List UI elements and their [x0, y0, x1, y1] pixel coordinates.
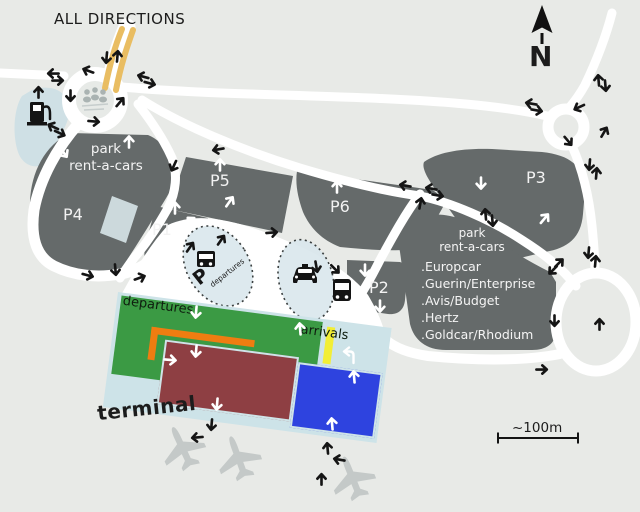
- direction-arrow: [79, 266, 97, 284]
- direction-arrow: [141, 74, 159, 92]
- bus-stop-icon: [333, 279, 351, 301]
- direction-arrow: [291, 319, 308, 336]
- direction-arrow: [162, 351, 179, 368]
- direction-arrow: [535, 362, 550, 377]
- direction-arrow: [187, 304, 204, 321]
- rental-company: .Guerin/Enterprise: [421, 275, 535, 292]
- north-label: N: [529, 40, 552, 73]
- direction-arrow: [597, 78, 613, 94]
- direction-arrow: [411, 193, 428, 210]
- rental-company: .Europcar: [421, 258, 535, 275]
- airport-map: departures arrivals ALL DIRECTIONS N ~10…: [0, 0, 640, 512]
- direction-arrow: [473, 176, 489, 192]
- turn-left-arrow: [338, 346, 358, 366]
- direction-arrow: [345, 367, 362, 384]
- plane-icon: [210, 429, 266, 486]
- direction-arrow: [86, 113, 102, 129]
- parking-lot-p3-label: P3: [526, 168, 546, 187]
- direction-arrow: [187, 343, 204, 360]
- direction-arrow: [588, 164, 604, 180]
- parking-lot-p6-label: P6: [330, 197, 350, 216]
- direction-arrow: [51, 73, 66, 88]
- direction-arrow: [63, 89, 78, 104]
- direction-arrow: [203, 417, 219, 433]
- direction-arrow: [323, 414, 340, 431]
- direction-arrow: [212, 156, 228, 172]
- road: [122, 87, 547, 116]
- scale-label: ~100m: [512, 420, 562, 436]
- direction-arrow: [329, 178, 345, 194]
- parking-lot-p1-label: P1: [152, 220, 172, 239]
- direction-arrow: [167, 199, 183, 215]
- direction-arrow: [121, 133, 137, 149]
- direction-arrow: [429, 186, 446, 203]
- direction-arrow: [592, 316, 607, 331]
- direction-arrow: [31, 84, 46, 99]
- direction-arrow: [188, 429, 204, 445]
- map-title: ALL DIRECTIONS: [54, 10, 185, 28]
- direction-arrow: [547, 314, 562, 329]
- direction-arrow: [395, 176, 412, 193]
- rental-companies-list: .Europcar .Guerin/Enterprise .Avis/Budge…: [421, 258, 535, 343]
- direction-arrow: [208, 396, 225, 413]
- direction-arrow: [144, 247, 160, 263]
- rent-a-car-west-label: park rent-a-cars: [57, 141, 155, 175]
- direction-arrow: [372, 299, 388, 315]
- direction-arrow: [307, 258, 324, 275]
- rental-company: .Avis/Budget: [421, 292, 535, 309]
- direction-arrow: [109, 47, 125, 63]
- parking-lot-p5-label: P5: [210, 171, 230, 190]
- direction-arrow: [528, 101, 545, 118]
- rent-a-car-east-label: park rent-a-cars: [424, 226, 520, 255]
- parking-lot-p4-label: P4: [63, 205, 83, 224]
- direction-arrow: [587, 252, 603, 268]
- direction-arrow: [329, 450, 346, 467]
- direction-arrow: [107, 262, 123, 278]
- rental-company: .Hertz: [421, 309, 535, 326]
- rental-company: .Goldcar/Rhodium: [421, 326, 535, 343]
- direction-arrow: [264, 224, 280, 240]
- north-arrow-icon: [532, 5, 553, 44]
- plane-icon: [153, 418, 211, 477]
- direction-arrow: [357, 263, 373, 279]
- parking-lot-p2-label: P2: [369, 278, 389, 297]
- direction-arrow: [484, 213, 500, 229]
- direction-arrow: [314, 471, 329, 486]
